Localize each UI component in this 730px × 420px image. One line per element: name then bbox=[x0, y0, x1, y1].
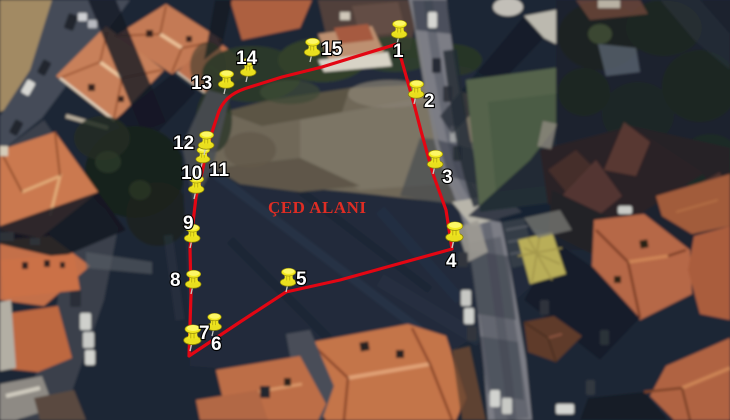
svg-text:15: 15 bbox=[321, 39, 343, 60]
svg-text:3: 3 bbox=[442, 167, 453, 188]
svg-text:14: 14 bbox=[236, 48, 258, 69]
svg-text:9: 9 bbox=[183, 213, 194, 234]
svg-text:11: 11 bbox=[209, 160, 230, 181]
svg-text:2: 2 bbox=[424, 91, 435, 112]
svg-text:1: 1 bbox=[393, 41, 404, 62]
svg-text:8: 8 bbox=[170, 270, 181, 291]
svg-text:12: 12 bbox=[173, 133, 194, 154]
svg-text:13: 13 bbox=[191, 73, 212, 94]
svg-text:4: 4 bbox=[446, 251, 457, 272]
svg-text:7: 7 bbox=[199, 323, 210, 344]
svg-text:10: 10 bbox=[181, 163, 202, 184]
svg-text:6: 6 bbox=[211, 334, 222, 355]
svg-text:5: 5 bbox=[296, 269, 307, 290]
svg-text:ÇED ALANI: ÇED ALANI bbox=[268, 198, 367, 217]
